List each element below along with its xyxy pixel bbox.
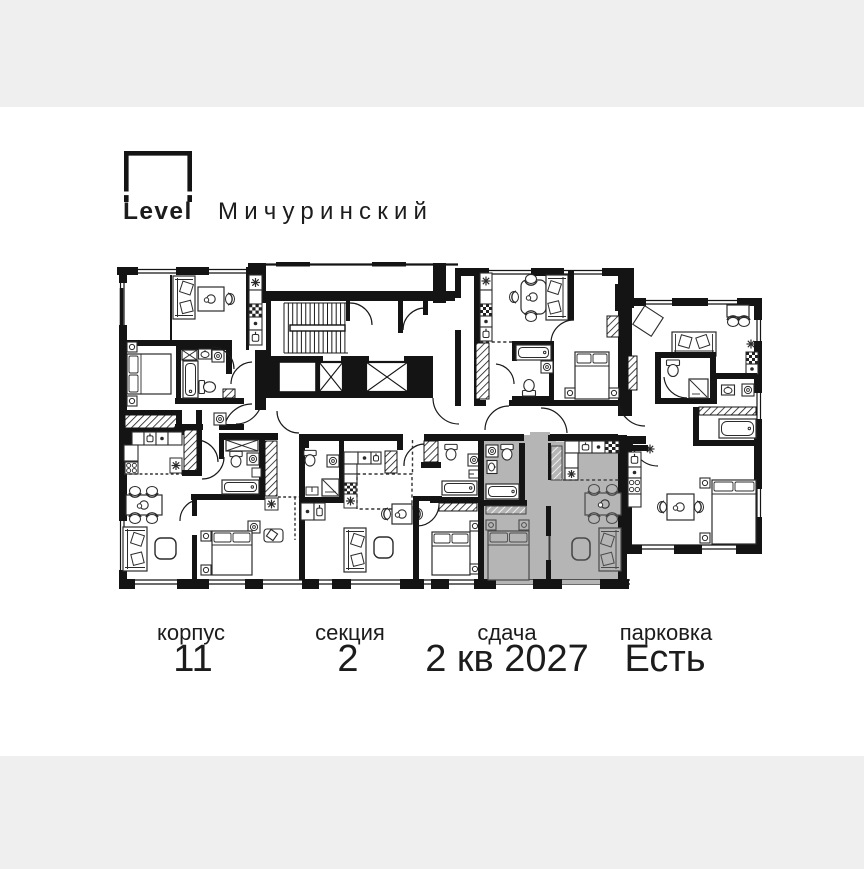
svg-text:11: 11: [173, 638, 212, 680]
svg-text:2: 2: [337, 638, 358, 680]
svg-text:2 кв 2027: 2 кв 2027: [425, 638, 589, 680]
svg-text:Level: Level: [123, 198, 193, 225]
svg-text:Есть: Есть: [624, 638, 705, 680]
svg-text:Мичуринский: Мичуринский: [218, 198, 433, 225]
